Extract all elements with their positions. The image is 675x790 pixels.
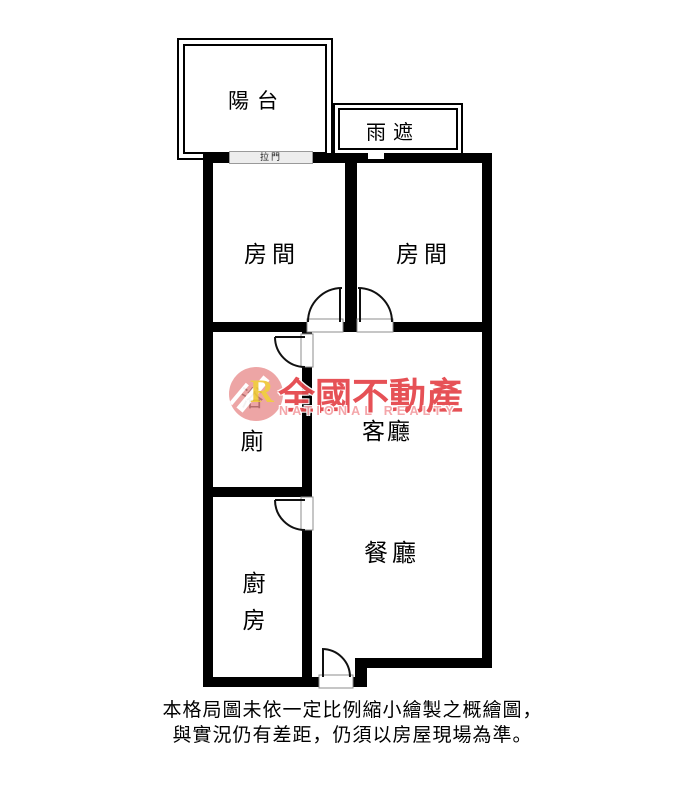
disclaimer-line1: 本格局圖未依一定比例縮小繪製之概繪圖，: [15, 698, 675, 723]
kitchen-label-char2: 房: [243, 601, 266, 635]
door-threshold-kitchen: [301, 497, 313, 530]
balcony-label: 陽台: [228, 85, 286, 115]
floorplan-canvas: 拉門 陽台 雨遮 房間 房間 客廳 餐廳 浴 廁 廚: [0, 0, 675, 790]
bedroom-left-label: 房間: [244, 235, 300, 269]
bedroom-right-label: 房間: [396, 235, 452, 269]
kitchen-label: 廚 房: [241, 564, 267, 635]
door-threshold-bedroom-right: [357, 319, 393, 332]
door-arc-bedroom-left: [308, 288, 342, 322]
realty-logo-icon: R: [229, 367, 283, 421]
disclaimer-line2: 與實況仍有差距，仍須以房屋現場為準。: [15, 723, 675, 748]
door-threshold-entrance: [319, 675, 353, 688]
door-threshold-bathroom: [301, 334, 313, 367]
door-threshold-bedroom-left: [307, 319, 343, 332]
door-arc-bedroom-right: [358, 288, 392, 322]
logo-letter: R: [250, 374, 274, 411]
bathroom-label-char2: 廁: [241, 422, 264, 456]
watermark-brand-english: NATIONAL REALTY: [279, 404, 458, 418]
kitchen-label-char1: 廚: [243, 564, 266, 598]
disclaimer: 本格局圖未依一定比例縮小繪製之概繪圖， 與實況仍有差距，仍須以房屋現場為準。: [15, 698, 675, 748]
watermark: R 全國不動產 NATIONAL REALTY: [229, 365, 459, 421]
door-arc-entrance: [322, 649, 350, 677]
rain-cover-label: 雨遮: [366, 116, 420, 145]
dining-room-label: 餐廳: [364, 533, 420, 568]
